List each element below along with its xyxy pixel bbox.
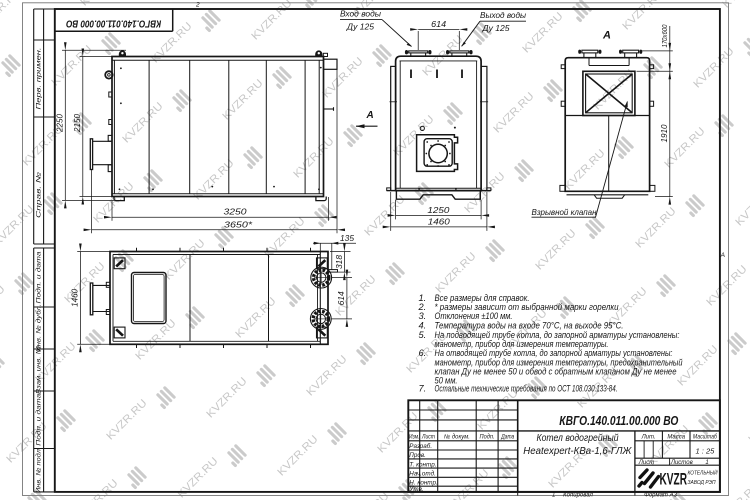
svg-text:Изм.: Изм.: [409, 434, 420, 440]
svg-text:170х600: 170х600: [662, 24, 669, 47]
svg-text:Взрывной клапан: Взрывной клапан: [532, 207, 597, 217]
svg-text:Взам. инв. №: Взам. инв. №: [36, 346, 43, 394]
svg-text:Копировал: Копировал: [563, 492, 593, 498]
svg-text:КВГО.140.011.00.000 ВО: КВГО.140.011.00.000 ВО: [66, 18, 161, 29]
svg-text:Лист: Лист: [421, 434, 435, 440]
svg-text:Лит.: Лит.: [641, 434, 656, 440]
svg-text:Котел водогрейный: Котел водогрейный: [537, 432, 619, 444]
svg-text:2: 2: [195, 2, 200, 9]
svg-text:Подп.: Подп.: [480, 434, 495, 440]
svg-text:Остальные технические требован: Остальные технические требования по ОСТ …: [435, 384, 618, 394]
svg-text:2150: 2150: [73, 113, 82, 133]
svg-text:2250: 2250: [55, 113, 64, 133]
svg-text:ЗАВОД РЭП: ЗАВОД РЭП: [688, 480, 717, 486]
svg-text:Масса: Масса: [667, 434, 685, 440]
svg-text:7.: 7.: [419, 384, 427, 394]
svg-text:Формат А3: Формат А3: [644, 492, 677, 498]
svg-text:Ду 125: Ду 125: [346, 23, 375, 32]
svg-text:Инв. № дубл.: Инв. № дубл.: [35, 304, 43, 352]
svg-text:КВГО.140.011.00.000 ВО: КВГО.140.011.00.000 ВО: [559, 414, 678, 428]
svg-text:3250: 3250: [224, 208, 248, 217]
svg-text:КОТЕЛЬНЫЙ: КОТЕЛЬНЫЙ: [688, 469, 719, 477]
svg-text:А: А: [602, 30, 611, 42]
svg-text:614: 614: [431, 20, 447, 29]
svg-text:318: 318: [335, 254, 344, 269]
svg-text:Подп. и дата: Подп. и дата: [35, 393, 43, 445]
svg-text:6.: 6.: [419, 348, 427, 358]
svg-text:Нач.отд.: Нач.отд.: [409, 470, 436, 478]
svg-text:1250: 1250: [427, 206, 450, 215]
svg-text:3650*: 3650*: [224, 220, 253, 229]
svg-text:Heatexpert-КВа-1,6-ГЛЖ: Heatexpert-КВа-1,6-ГЛЖ: [523, 445, 632, 457]
svg-text:А: А: [720, 252, 725, 259]
svg-text:Лист: Лист: [638, 460, 654, 466]
svg-text:1: 1: [552, 492, 555, 498]
svg-text:5.: 5.: [419, 330, 427, 340]
svg-text:1: 1: [705, 460, 708, 466]
svg-text:1460: 1460: [428, 218, 451, 227]
svg-text:Утв.: Утв.: [408, 486, 423, 493]
svg-text:614: 614: [337, 291, 346, 306]
svg-text:Разраб.: Разраб.: [409, 442, 432, 450]
svg-text:1460: 1460: [71, 288, 80, 307]
svg-text:№ докум.: № докум.: [444, 433, 470, 440]
svg-text:Пров.: Пров.: [409, 452, 426, 459]
svg-text:Ду 125: Ду 125: [481, 24, 510, 33]
svg-text:клапан Ду не менее 50 и обвод: клапан Ду не менее 50 и обвод с обратным…: [435, 367, 677, 377]
svg-text:Инв. № подл.: Инв. № подл.: [35, 447, 43, 493]
svg-text:1910: 1910: [660, 124, 669, 143]
svg-text:135: 135: [340, 234, 355, 243]
svg-text:Перв. примен.: Перв. примен.: [36, 47, 43, 109]
svg-text:Справ. №: Справ. №: [36, 172, 43, 218]
svg-text:KVZR: KVZR: [660, 470, 688, 489]
svg-text:Подп. и дата: Подп. и дата: [35, 251, 43, 303]
svg-text:1 : 25: 1 : 25: [696, 447, 716, 456]
svg-text:Масштаб: Масштаб: [693, 434, 718, 440]
svg-text:Листов: Листов: [670, 460, 693, 466]
svg-text:Вход воды: Вход воды: [340, 9, 381, 18]
svg-text:Дата: Дата: [500, 434, 514, 440]
svg-text:Т. контр.: Т. контр.: [409, 461, 436, 468]
svg-text:Выход воды: Выход воды: [480, 11, 526, 20]
svg-text:А: А: [366, 110, 374, 121]
